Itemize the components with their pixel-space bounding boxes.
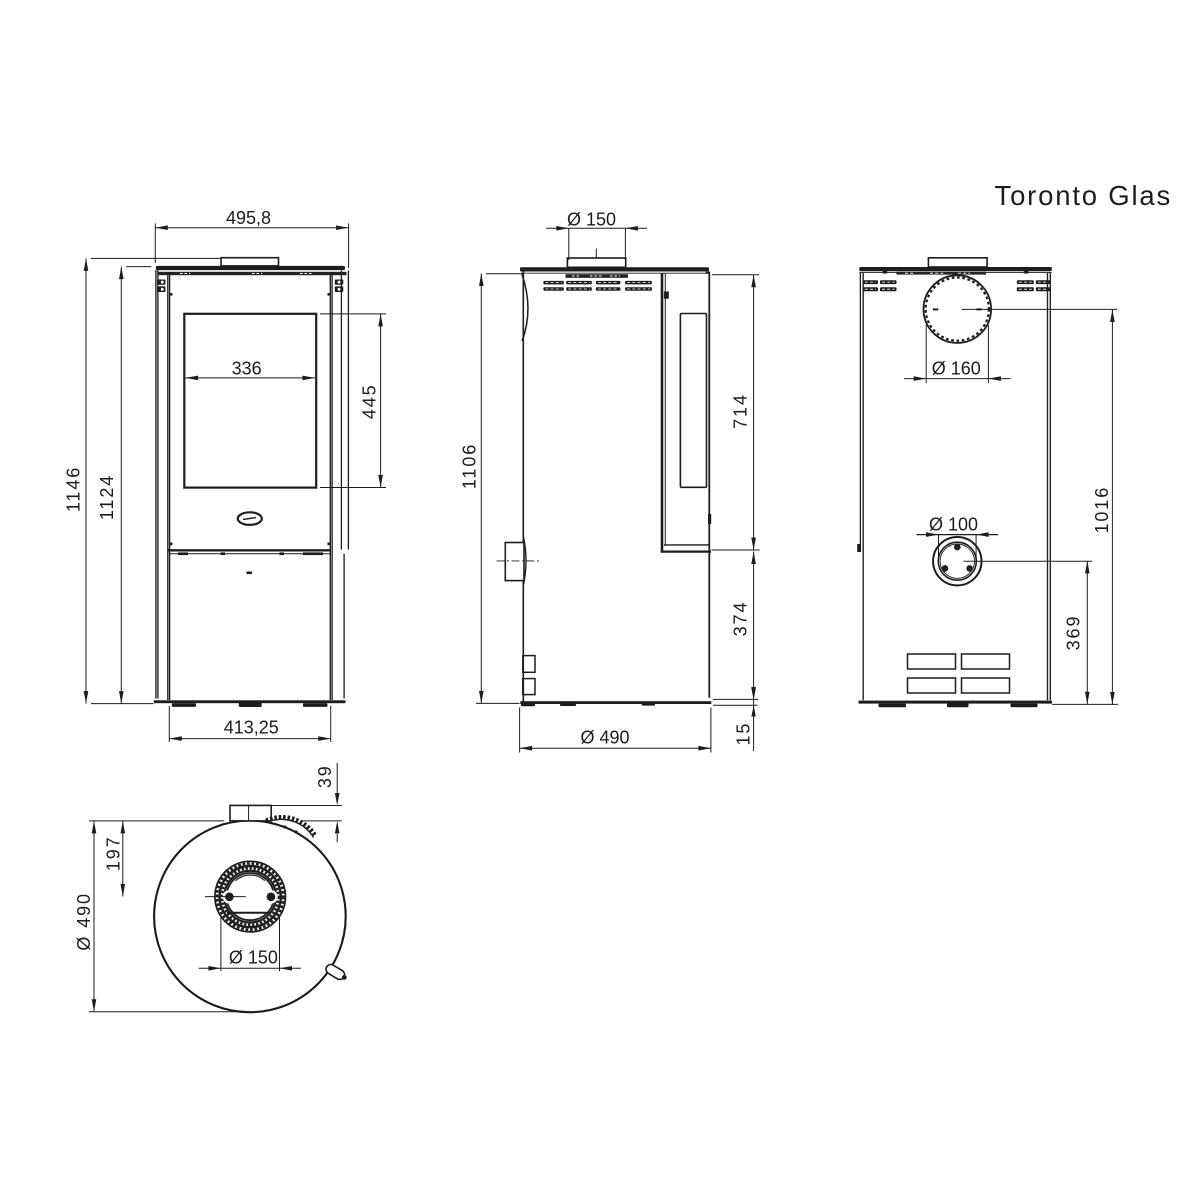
- svg-text:413,25: 413,25: [224, 718, 279, 738]
- svg-text:Ø 490: Ø 490: [74, 892, 94, 951]
- svg-text:369: 369: [1064, 615, 1084, 651]
- svg-text:495,8: 495,8: [226, 208, 271, 228]
- svg-text:Ø 150: Ø 150: [567, 210, 616, 230]
- svg-text:197: 197: [104, 835, 124, 871]
- svg-text:374: 374: [730, 601, 750, 637]
- svg-text:714: 714: [730, 393, 750, 429]
- svg-text:Ø 150: Ø 150: [229, 947, 278, 967]
- svg-text:336: 336: [232, 359, 262, 379]
- svg-text:Ø 490: Ø 490: [580, 728, 629, 748]
- svg-text:Ø 160: Ø 160: [932, 358, 981, 378]
- svg-text:15: 15: [734, 722, 754, 746]
- svg-text:39: 39: [315, 764, 335, 788]
- svg-text:1124: 1124: [97, 474, 117, 520]
- svg-text:1146: 1146: [64, 466, 84, 512]
- svg-text:1016: 1016: [1092, 486, 1112, 534]
- svg-text:1106: 1106: [460, 443, 480, 489]
- svg-text:445: 445: [359, 383, 379, 419]
- svg-text:Ø 100: Ø 100: [929, 515, 978, 535]
- svg-text:Toronto Glas: Toronto Glas: [995, 180, 1173, 211]
